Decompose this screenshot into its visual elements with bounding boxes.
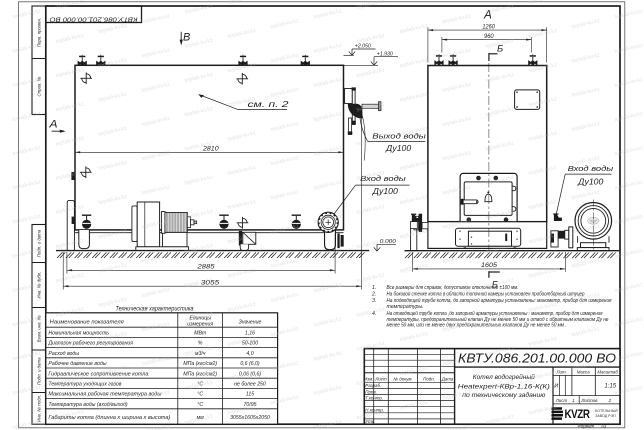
svg-text:4,0: 4,0 <box>246 351 253 357</box>
svg-text:Номинальная мощность: Номинальная мощность <box>48 331 109 337</box>
svg-text:KVZR: KVZR <box>565 407 591 421</box>
svg-text:МВт: МВт <box>194 331 207 337</box>
svg-text:Инв. № подл.: Инв. № подл. <box>37 395 42 422</box>
svg-text:КВТУ.086.201.00.000 ВО: КВТУ.086.201.00.000 ВО <box>49 15 138 22</box>
svg-text:Ду100: Ду100 <box>577 178 604 187</box>
svg-text:Лит.: Лит. <box>556 370 567 375</box>
svg-text:МПа (кгс/см2): МПа (кгс/см2) <box>183 371 217 377</box>
svg-text:1:15: 1:15 <box>604 383 616 389</box>
svg-text:Котел водогрейный: Котел водогрейный <box>473 373 535 381</box>
svg-text:Дата: Дата <box>441 377 454 382</box>
svg-text:°С: °С <box>197 402 203 408</box>
svg-text:Подп. и дата: Подп. и дата <box>37 357 42 385</box>
svg-text:2885: 2885 <box>196 264 215 271</box>
svg-text:Формат: Формат <box>578 424 595 429</box>
svg-text:А: А <box>48 119 57 131</box>
svg-text:1.: 1. <box>372 285 376 291</box>
svg-text:Ду100: Ду100 <box>372 187 399 196</box>
svg-text:3055х1605х2050: 3055х1605х2050 <box>230 415 270 421</box>
svg-text:не более 250: не более 250 <box>234 382 266 388</box>
svg-text:+1.930: +1.930 <box>377 51 394 57</box>
svg-text:2: 2 <box>608 398 612 403</box>
svg-text:Техническая характеристика: Техническая характеристика <box>116 305 194 312</box>
svg-text:И: И <box>554 383 558 389</box>
svg-text:Утв.: Утв. <box>365 419 375 424</box>
svg-text:Рабочее давление воды: Рабочее давление воды <box>48 361 106 367</box>
svg-text:0,6 (6,0): 0,6 (6,0) <box>240 361 260 367</box>
svg-text:Масштаб: Масштаб <box>597 370 618 375</box>
svg-text:Пров.: Пров. <box>365 389 377 394</box>
svg-text:Лист: Лист <box>555 398 568 403</box>
svg-text:измерения: измерения <box>187 322 213 328</box>
svg-text:Подп.: Подп. <box>423 377 435 382</box>
svg-text:На боковой стенке котла в обла: На боковой стенке котла в области топочн… <box>387 290 585 297</box>
svg-text:МПа (кгс/см2): МПа (кгс/см2) <box>183 361 217 367</box>
svg-text:960: 960 <box>484 33 494 40</box>
svg-text:ЗАВОД РЭП: ЗАВОД РЭП <box>595 414 616 418</box>
svg-text:2.: 2. <box>371 291 376 297</box>
svg-text:3.: 3. <box>372 298 376 304</box>
svg-text:1605: 1605 <box>481 262 497 269</box>
svg-text:В: В <box>183 31 190 43</box>
svg-text:115: 115 <box>246 392 254 398</box>
svg-text:°С: °С <box>197 392 203 398</box>
svg-text:менее 50 мм, или не менее двух: менее 50 мм, или не менее двух предохран… <box>387 323 567 329</box>
svg-text:Расход воды: Расход воды <box>48 351 79 357</box>
svg-text:1260: 1260 <box>482 23 495 30</box>
svg-text:Значение: Значение <box>239 319 262 325</box>
svg-text:Ду100: Ду100 <box>385 144 412 153</box>
svg-text:по техническому заданию: по техническому заданию <box>462 391 545 399</box>
svg-text:Наименование показателя: Наименование показателя <box>50 320 124 326</box>
svg-text:Т.контр.: Т.контр. <box>365 395 383 400</box>
svg-text:№ докум.: № докум. <box>393 377 412 382</box>
svg-text:А3: А3 <box>600 424 607 429</box>
svg-text:%: % <box>198 341 203 347</box>
svg-text:КОТЕЛЬНЫЙ: КОТЕЛЬНЫЙ <box>595 409 618 413</box>
